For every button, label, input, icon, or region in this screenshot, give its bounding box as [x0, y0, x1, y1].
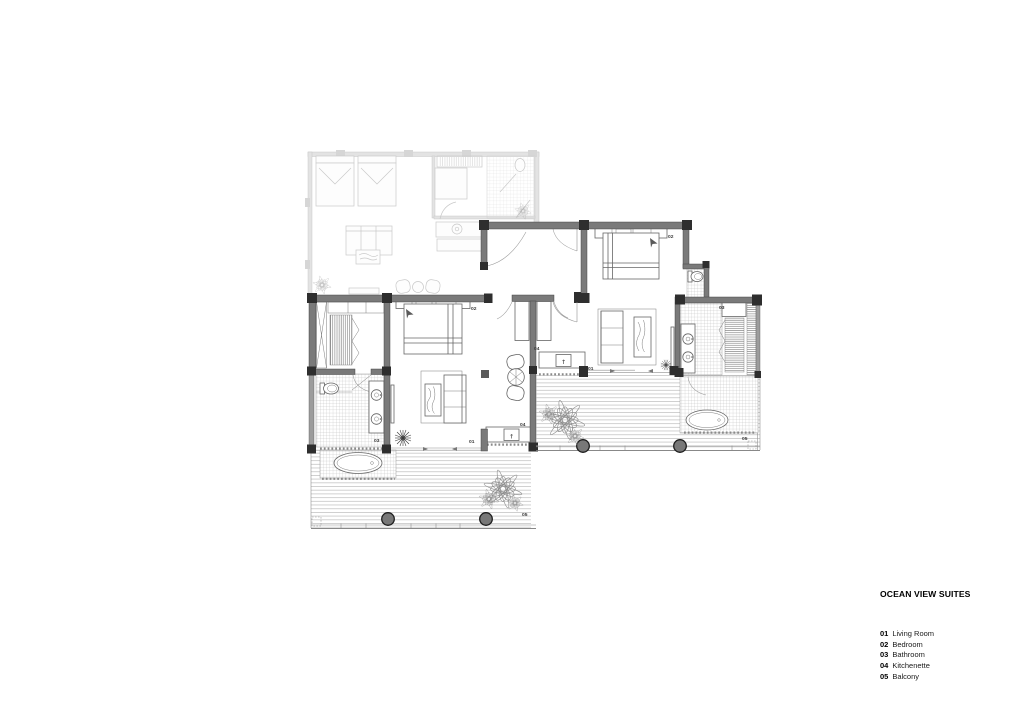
faded-bathroom — [487, 156, 535, 220]
floor-plan: ↑ — [0, 0, 1024, 724]
column — [674, 440, 687, 453]
room-label-left-bathroom: 03 — [374, 438, 380, 444]
coffee-table — [425, 384, 441, 416]
room-label-left-kitchenette: 04 — [520, 422, 526, 428]
left-kitchenette: ↑ — [486, 427, 531, 445]
legend-item-kitchenette: 04Kitchenette — [880, 661, 1010, 672]
column — [382, 513, 395, 526]
sliding-door — [587, 369, 675, 373]
outdoor-bathtub — [320, 450, 396, 479]
faded-bed-3 — [435, 168, 467, 199]
legend: OCEAN VIEW SUITES 01Living Room 02Bedroo… — [880, 589, 1010, 683]
kitchenette-unit-icon: ↑ — [509, 434, 514, 441]
legend-list: 01Living Room 02Bedroom 03Bathroom 04Kit… — [880, 629, 1010, 683]
left-closet — [317, 302, 385, 368]
faded-bed-1 — [316, 156, 354, 206]
column — [480, 513, 493, 526]
right-bedroom — [595, 226, 667, 279]
page: ↑ — [0, 0, 1024, 724]
legend-title: OCEAN VIEW SUITES — [880, 589, 1010, 599]
room-label-right-bedroom: 02 — [668, 234, 674, 240]
outdoor-bathtub — [680, 376, 758, 433]
column — [577, 440, 590, 453]
room-label-right-bathroom: 03 — [719, 305, 725, 311]
legend-item-balcony: 05Balcony — [880, 672, 1010, 683]
faded-bed-2 — [358, 156, 396, 206]
faded-plant — [313, 276, 332, 295]
faded-coffee-table — [356, 250, 380, 264]
wardrobe — [719, 303, 756, 376]
left-bed — [396, 298, 470, 355]
room-label-right-living: 01 — [588, 366, 594, 372]
faded-vanity — [436, 222, 484, 251]
legend-item-living: 01Living Room — [880, 629, 1010, 640]
double-vanity — [681, 324, 695, 373]
kitchenette-unit-icon: ↑ — [561, 359, 566, 366]
legend-item-bathroom: 03Bathroom — [880, 650, 1010, 661]
chair-set — [506, 353, 526, 401]
right-wc — [687, 267, 705, 299]
left-bathroom — [316, 374, 394, 449]
right-bathroom — [671, 303, 756, 376]
room-label-left-balcony: 05 — [522, 512, 528, 518]
right-kitchenette: ↑ — [539, 352, 585, 368]
indoor-plant — [395, 430, 411, 446]
room-label-left-living: 01 — [469, 439, 475, 445]
faded-closet — [437, 156, 482, 167]
room-label-left-bedroom: 02 — [471, 306, 477, 312]
mirror — [671, 327, 674, 371]
right-balcony — [536, 374, 760, 452]
right-living: ↑ — [539, 309, 675, 373]
toilet — [320, 383, 339, 394]
sofa — [444, 375, 466, 423]
side-table — [481, 370, 489, 378]
legend-item-bedroom: 02Bedroom — [880, 640, 1010, 651]
room-label-right-kitchenette: 04 — [534, 346, 540, 352]
mirror — [391, 385, 394, 423]
room-label-right-balcony: 05 — [742, 436, 748, 442]
left-balcony — [311, 450, 536, 528]
coffee-table — [634, 317, 651, 357]
sofa — [601, 311, 623, 363]
double-vanity — [369, 381, 384, 433]
faded-chairs — [349, 279, 441, 294]
